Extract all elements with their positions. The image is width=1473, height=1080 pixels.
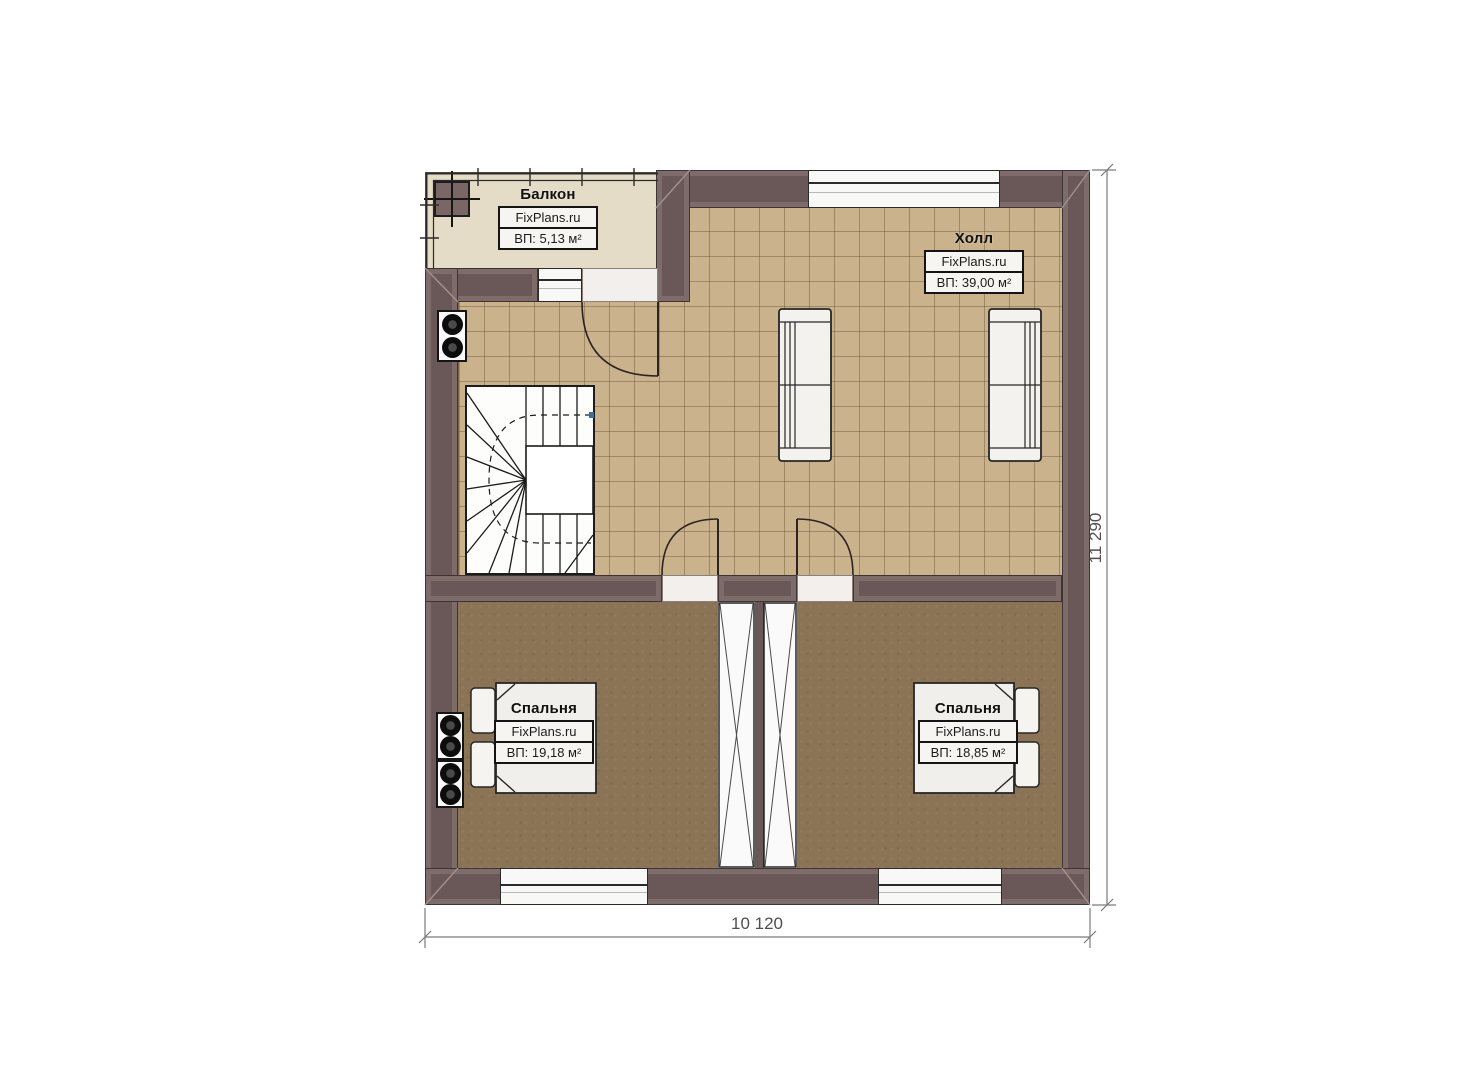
floor-plan-canvas: 10 120 11 290 Балкон FixPlans.ru ВП: 5,1… [0, 0, 1473, 1080]
room-area: ВП: 5,13 м² [500, 229, 596, 248]
window-balcony [538, 268, 582, 302]
vent-bedroom-upper [436, 712, 464, 760]
chimney-symbol [434, 181, 470, 217]
hall-cabinet-right [988, 308, 1042, 462]
dimension-bottom-label: 10 120 [731, 914, 783, 933]
flue-circle [440, 763, 461, 784]
room-label-balcony: Балкон FixPlans.ru ВП: 5,13 м² [494, 186, 602, 250]
room-name: Балкон [520, 186, 575, 203]
flue-circle [442, 314, 463, 335]
window-pane [501, 892, 647, 893]
wall-balcony-corner [656, 170, 690, 302]
brand-watermark: FixPlans.ru [496, 722, 592, 743]
wall-mid-left [425, 575, 662, 602]
room-area: ВП: 39,00 м² [926, 273, 1022, 292]
brand-watermark: FixPlans.ru [500, 208, 596, 229]
room-area: ВП: 19,18 м² [496, 743, 592, 762]
window-top [808, 170, 1000, 208]
room-label-hall: Холл FixPlans.ru ВП: 39,00 м² [920, 230, 1028, 294]
closet-shafts [718, 602, 797, 868]
dimension-right [1092, 164, 1116, 911]
room-info-box: FixPlans.ru ВП: 18,85 м² [918, 720, 1018, 764]
room-label-bedroom-right: Спальня FixPlans.ru ВП: 18,85 м² [914, 700, 1022, 764]
wall-mid-right [853, 575, 1062, 602]
flue-circle [440, 784, 461, 805]
window-pane [809, 182, 999, 184]
bedroom-left-door-threshold [662, 575, 718, 602]
room-name: Спальня [511, 700, 577, 717]
flue-circle [440, 736, 461, 757]
cabinet-drawing [778, 308, 832, 462]
cabinet-drawing [988, 308, 1042, 462]
wall-right [1062, 170, 1090, 905]
room-info-box: FixPlans.ru ВП: 5,13 м² [498, 206, 598, 250]
vent-hall [437, 310, 467, 362]
window-bottom-left [500, 868, 648, 905]
bedroom-right-door-threshold [797, 575, 853, 602]
room-info-box: FixPlans.ru ВП: 19,18 м² [494, 720, 594, 764]
vent-bedroom-lower [436, 760, 464, 808]
window-bottom-right [878, 868, 1002, 905]
stair-marker [589, 412, 594, 418]
window-pane [809, 192, 999, 193]
room-name: Спальня [935, 700, 1001, 717]
window-pane [501, 884, 647, 886]
brand-watermark: FixPlans.ru [926, 252, 1022, 273]
hall-cabinet-left [778, 308, 832, 462]
balcony-door-threshold [582, 268, 658, 302]
dimension-bottom [419, 908, 1096, 948]
staircase [465, 385, 595, 575]
wall-mid-center [718, 575, 797, 602]
room-name: Холл [955, 230, 993, 247]
flue-circle [440, 715, 461, 736]
closet-drawing [718, 602, 797, 868]
flue-circle [442, 337, 463, 358]
window-pane [879, 892, 1001, 893]
room-area: ВП: 18,85 м² [920, 743, 1016, 762]
window-pane [879, 884, 1001, 886]
staircase-drawing [465, 385, 595, 575]
window-pane [539, 288, 581, 289]
room-info-box: FixPlans.ru ВП: 39,00 м² [924, 250, 1024, 294]
room-label-bedroom-left: Спальня FixPlans.ru ВП: 19,18 м² [490, 700, 598, 764]
brand-watermark: FixPlans.ru [920, 722, 1016, 743]
window-pane [539, 279, 581, 281]
